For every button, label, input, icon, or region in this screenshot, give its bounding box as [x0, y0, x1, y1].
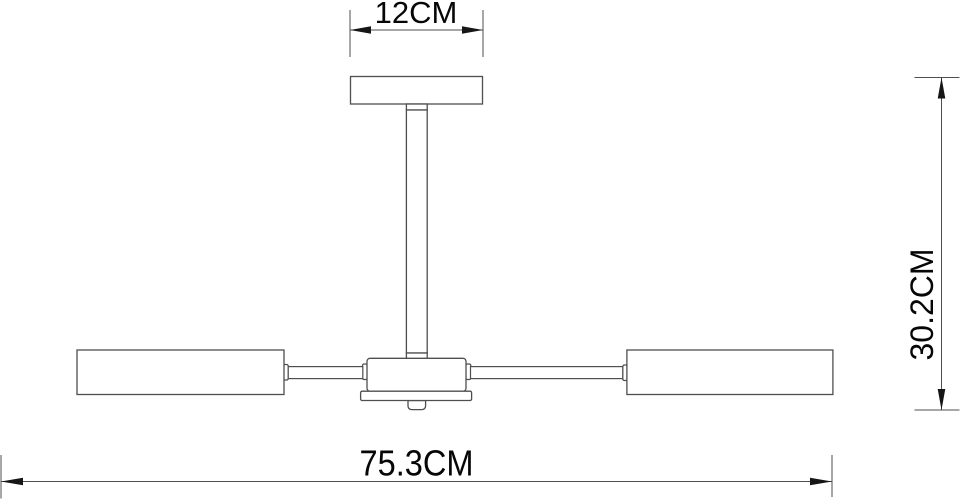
svg-text:75.3CM: 75.3CM — [360, 443, 474, 484]
svg-text:30.2CM: 30.2CM — [904, 248, 940, 360]
svg-text:12CM: 12CM — [375, 0, 458, 30]
